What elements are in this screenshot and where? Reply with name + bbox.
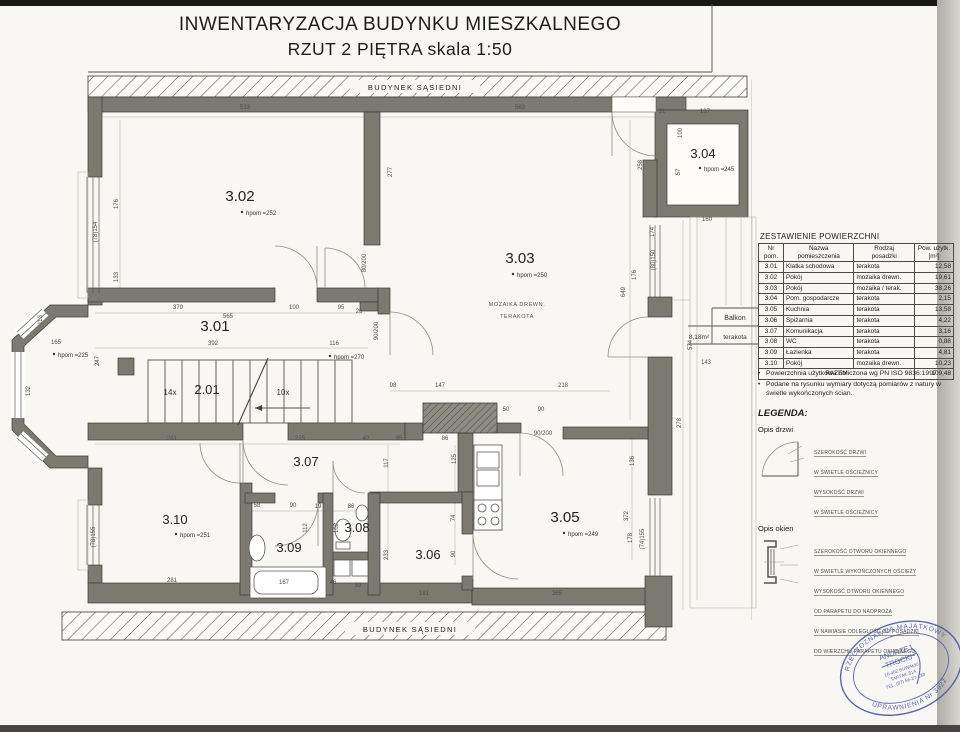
table-cell: 3.07: [759, 326, 784, 337]
dimension-label: 143: [701, 360, 712, 366]
title-frame: [88, 4, 712, 72]
dimension-label: 95: [338, 305, 345, 311]
room-label-3-09: 3.09: [276, 540, 301, 555]
stair-label: 2.01: [194, 382, 219, 397]
dimension-label: 574: [688, 339, 694, 350]
chimney-block: [423, 403, 497, 433]
bay-height: hpom =225: [58, 353, 89, 359]
dimension-label: 176: [114, 198, 120, 209]
table-cell: 13,58: [915, 305, 954, 316]
dimension-label: 278: [677, 417, 683, 428]
dimension-label: 116: [329, 341, 339, 347]
dimension-label: 112: [303, 523, 309, 533]
doors: [200, 97, 656, 579]
room-height-3-03: hpom =250: [517, 273, 548, 279]
dimension-label: (80)150: [651, 249, 657, 270]
appliance-1: [334, 560, 350, 576]
dimension-label: 125: [452, 453, 458, 464]
dimension-label: 31: [659, 109, 666, 115]
room-floor-3-03-b: TERAKOTA: [500, 314, 534, 320]
dimension-label: 98: [390, 383, 397, 389]
stair-count-up: 14x: [164, 388, 177, 397]
table-cell: Kuchnia: [784, 305, 854, 316]
dimension-label: 57: [676, 168, 682, 175]
dimension-label: 176: [632, 269, 638, 280]
legend-leader-text: SZEROKOŚĆ OTWORU OKIENNEGO: [814, 549, 906, 556]
neighbor-label-top: BUDYNEK SĄSIEDNI: [368, 83, 462, 92]
kitchen-counter: [474, 445, 502, 530]
table-cell: terakota: [854, 305, 915, 316]
room-floor-3-03-a: MOZAIKA DREWN.: [489, 302, 546, 308]
dimension-label: 165: [51, 340, 62, 346]
dimension-label: 58: [254, 503, 261, 509]
dimension-label: 533: [240, 105, 251, 111]
table-cell: terakota: [854, 337, 915, 348]
room-label-3-04: 3.04: [690, 146, 715, 161]
table-row: 3.01Klatka schodowaterakota12,58: [759, 262, 954, 273]
table-cell: Komunikacja: [784, 326, 854, 337]
dimension-label: 90: [451, 550, 457, 557]
appliance-2: [352, 560, 368, 576]
table-cell: 3.04: [759, 294, 784, 305]
table-cell: 12,58: [915, 262, 954, 273]
legend-doors-title: Opis drzwi: [758, 425, 958, 434]
neighbor-label-bottom: BUDYNEK SĄSIEDNI: [363, 625, 457, 634]
table-cell: 3.10: [759, 358, 784, 369]
dimension-label: 90/200: [374, 321, 380, 340]
table-cell: terakota: [854, 315, 915, 326]
corridor-height: hpom =270: [334, 355, 365, 361]
dimension-label: 233: [384, 549, 390, 560]
area-table-title: ZESTAWIENIE POWIERZCHNI: [760, 232, 956, 241]
dimension-label: 281: [167, 436, 178, 442]
table-cell: 3.01: [759, 262, 784, 273]
table-cell: 3.08: [759, 337, 784, 348]
table-cell: 4,22: [915, 315, 954, 326]
room-label-3-10: 3.10: [162, 512, 187, 527]
table-row: 3.02Pokójmozaika drewn.19,61: [759, 273, 954, 284]
area-table-body: 3.01Klatka schodowaterakota12,583.02Pokó…: [759, 262, 954, 369]
table-row: 3.07Komunikacjaterakota3,16: [759, 326, 954, 337]
balcony-name: Balkon: [724, 315, 746, 322]
legend-doors-lines: SZEROKOŚĆ DRZWIW ŚWIETLE OŚCIEŻNICYWYSOK…: [814, 440, 878, 520]
toilet-tank: [336, 542, 350, 549]
legend-leader-text: WYSOKOŚĆ DRZWI: [814, 490, 864, 497]
table-cell: 19,61: [915, 273, 954, 284]
dimension-label: 277: [388, 166, 394, 177]
dimension-label: 565: [223, 314, 234, 320]
window-symbol-icon: [758, 535, 810, 591]
area-table: Nrpom. Nazwapomieszczenia Rodzajposadzki…: [758, 243, 954, 380]
table-cell: mozaika / terak.: [854, 283, 915, 294]
legend-title: LEGENDA:: [758, 408, 958, 419]
dimension-label: 147: [435, 383, 446, 389]
legend-leader-text: W ŚWIETLE OŚCIEŻNICY: [814, 470, 878, 477]
dimension-label: 133: [114, 271, 120, 282]
dimension-label: 59: [355, 583, 362, 589]
room-label-3-02: 3.02: [225, 188, 254, 205]
door-symbol-icon: [758, 436, 810, 480]
legend-leader-text: W ŚWIETLE WYKOŃCZONYCH OŚCIEŻY: [814, 569, 916, 576]
table-row: 3.08WCterakota0,88: [759, 337, 954, 348]
table-cell: mozaika drewn.: [854, 273, 915, 284]
dimension-label: 80/200: [362, 253, 368, 272]
staircase: 2.01 14x 10x: [148, 358, 352, 425]
legend-leader-text: WYSOKOŚĆ OTWORU OKIENNEGO: [814, 589, 904, 596]
dimension-label: 137: [700, 109, 711, 115]
room-label-3-01: 3.01: [200, 318, 229, 335]
dimension-label: 160: [702, 217, 713, 223]
room-height-3-10: hpom =251: [180, 533, 211, 539]
walls: [12, 97, 748, 627]
dimension-label: 178: [628, 532, 634, 543]
table-cell: Pom. gospodarcze: [784, 294, 854, 305]
table-cell: 3.09: [759, 347, 784, 358]
dimension-label: 370: [173, 305, 184, 311]
dimension-label: 74: [451, 514, 457, 521]
table-cell: terakota: [854, 262, 915, 273]
room-label-3-03: 3.03: [505, 250, 534, 267]
dimension-label: 50: [503, 407, 510, 413]
dimension-label: 90: [290, 503, 297, 509]
neighbor-band-bottom: BUDYNEK SĄSIEDNI: [62, 612, 666, 640]
table-row: 3.10Pokójmozaika drewn.10,23: [759, 358, 954, 369]
table-cell: terakota: [854, 347, 915, 358]
table-cell: WC: [784, 337, 854, 348]
dimension-label: 113: [38, 315, 44, 325]
dimension-label: 136: [630, 455, 636, 466]
stair-count-down: 10x: [277, 388, 290, 397]
note-item: Podane na rysunku wymiary dotyczą pomiar…: [758, 380, 958, 398]
balcony-area: 8,18m²: [689, 334, 710, 341]
dimension-label: 117: [384, 458, 390, 468]
table-row: 3.09Łazienkaterakota4,81: [759, 347, 954, 358]
dimension-label: 86: [442, 436, 449, 442]
dimension-label: 102: [334, 522, 340, 533]
dimension-label: 247: [95, 355, 101, 366]
dimension-label: 46: [330, 580, 337, 586]
dimension-label: 225: [295, 436, 306, 442]
table-row: 3.06Spiżarniaterakota4,22: [759, 315, 954, 326]
balcony-floor: terakota: [723, 334, 747, 341]
table-cell: 2,15: [915, 294, 954, 305]
room-label-3-07: 3.07: [293, 454, 318, 469]
dimension-label: 181: [419, 591, 430, 597]
table-row: 3.03Pokójmozaika / terak.38,26: [759, 283, 954, 294]
table-cell: 3.06: [759, 315, 784, 326]
dimension-label: 649: [621, 286, 627, 297]
table-cell: Spiżarnia: [784, 315, 854, 326]
dimension-label: 26: [356, 309, 363, 315]
room-height-3-05: hpom =249: [568, 532, 599, 538]
washbasin-wc: [356, 505, 368, 521]
dimension-label: 392: [208, 341, 219, 347]
dimension-label: 372: [624, 510, 630, 521]
room-label-3-05: 3.05: [550, 509, 579, 526]
note-item: Powierzchnia użytkowa obliczona wg PN IS…: [758, 369, 958, 378]
table-row: 3.05Kuchniaterakota13,58: [759, 305, 954, 316]
area-schedule-panel: ZESTAWIENIE POWIERZCHNI Nrpom. Nazwapomi…: [758, 232, 956, 380]
table-cell: 3,16: [915, 326, 954, 337]
dimension-label: (74)155: [640, 528, 646, 549]
dimension-label: 90: [538, 407, 545, 413]
washbasin-bathroom: [249, 535, 265, 561]
balcony: Balkon 8,18m² terakota: [672, 217, 758, 608]
dimension-label: 218: [558, 383, 569, 389]
dimension-label: 19: [315, 504, 322, 510]
dimension-label: 365: [552, 591, 563, 597]
table-cell: Pokój: [784, 283, 854, 294]
room-height-3-02: hpom =252: [246, 211, 277, 217]
table-cell: mozaika drewn.: [854, 358, 915, 369]
dimension-label: 100: [289, 305, 300, 311]
dimension-label: 167: [279, 580, 290, 586]
notes-list: Powierzchnia użytkowa obliczona wg PN IS…: [758, 369, 958, 401]
dimension-label: (78)154: [93, 221, 99, 242]
table-cell: Łazienka: [784, 347, 854, 358]
table-cell: Pokój: [784, 273, 854, 284]
room-label-3-06: 3.06: [415, 547, 440, 562]
table-cell: 3.05: [759, 305, 784, 316]
table-cell: 10,23: [915, 358, 954, 369]
room-label-3-08: 3.08: [344, 520, 369, 535]
dimension-label: 90/200: [534, 431, 553, 437]
table-header-row: Nrpom. Nazwapomieszczenia Rodzajposadzki…: [759, 244, 954, 262]
table-cell: Pokój: [784, 358, 854, 369]
table-cell: 0,88: [915, 337, 954, 348]
neighbor-band-top: BUDYNEK SĄSIEDNI: [88, 76, 747, 97]
dimension-label: 100: [678, 127, 684, 138]
table-cell: 3.02: [759, 273, 784, 284]
table-cell: Klatka schodowa: [784, 262, 854, 273]
dimension-label: 281: [167, 578, 178, 584]
table-row: 3.04Pom. gospodarczeterakota2,15: [759, 294, 954, 305]
legend-leader-text: W ŚWIETLE OŚCIEŻNICY: [814, 510, 878, 517]
table-cell: 38,26: [915, 283, 954, 294]
dimension-label: 95: [396, 436, 403, 442]
dimension-label: 42: [363, 436, 370, 442]
dimension-label: 258: [638, 159, 644, 170]
dimension-label: 174: [650, 226, 656, 237]
dimension-label: 86: [348, 504, 355, 510]
table-cell: 4,81: [915, 347, 954, 358]
room-height-3-04: hpom =245: [704, 167, 735, 173]
dimension-label: 563: [515, 105, 526, 111]
dimension-label: (78)155: [91, 526, 97, 547]
legend-leader-text: SZEROKOŚĆ DRZWI: [814, 450, 866, 457]
dimension-label: 132: [26, 385, 32, 396]
table-cell: terakota: [854, 326, 915, 337]
table-cell: 3.03: [759, 283, 784, 294]
table-cell: terakota: [854, 294, 915, 305]
scanned-floor-plan-page: { "title": { "line1": "INWENTARYZACJA BU…: [0, 0, 960, 732]
legend-windows-title: Opis okien: [758, 524, 958, 533]
